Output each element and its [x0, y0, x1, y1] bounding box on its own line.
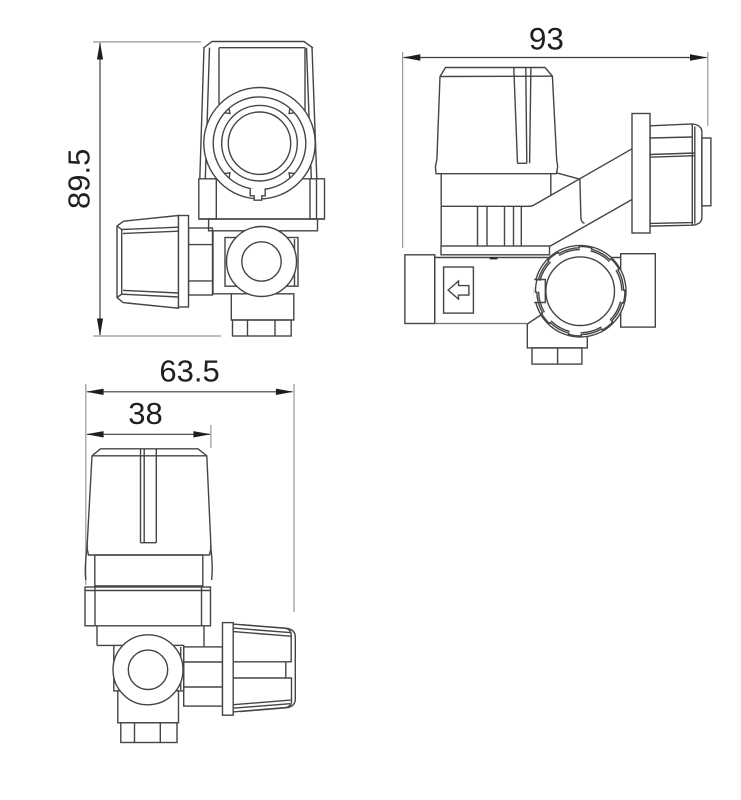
svg-text:89.5: 89.5 — [62, 149, 97, 209]
svg-text:93: 93 — [529, 21, 564, 57]
svg-text:38: 38 — [128, 396, 162, 431]
svg-text:63.5: 63.5 — [159, 353, 219, 388]
